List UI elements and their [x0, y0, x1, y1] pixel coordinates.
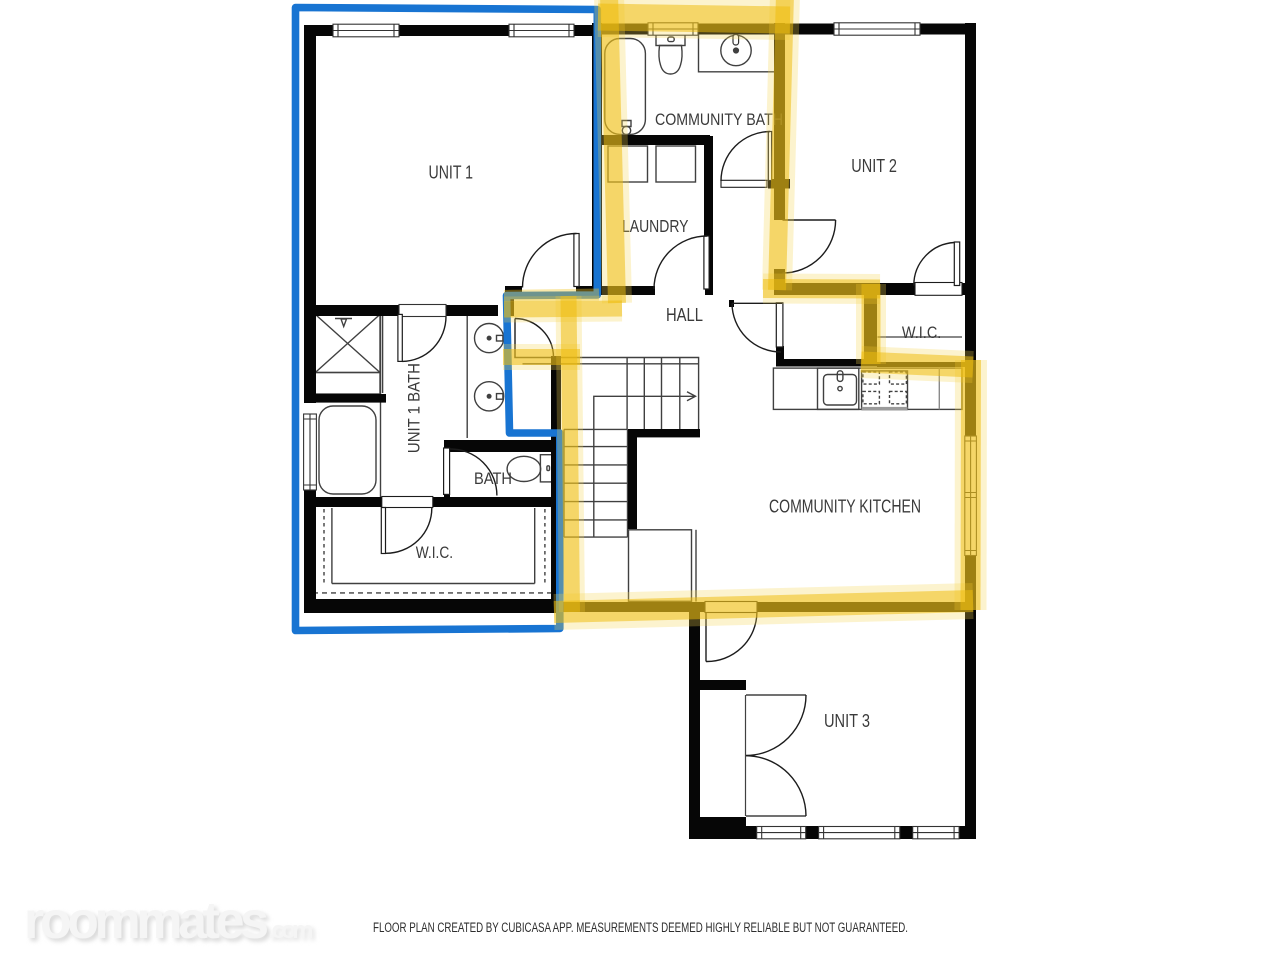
svg-text:UNIT 3: UNIT 3	[824, 710, 870, 731]
svg-text:W.I.C.: W.I.C.	[416, 544, 453, 562]
svg-text:FLOOR PLAN CREATED BY CUBICASA: FLOOR PLAN CREATED BY CUBICASA APP. MEAS…	[373, 920, 908, 935]
svg-text:LAUNDRY: LAUNDRY	[622, 216, 689, 236]
svg-text:roommates: roommates	[24, 892, 268, 950]
svg-text:COMMUNITY KITCHEN: COMMUNITY KITCHEN	[769, 496, 921, 517]
svg-text:W.I.C.: W.I.C.	[902, 324, 941, 342]
svg-text:UNIT 2: UNIT 2	[851, 156, 897, 176]
svg-text:HALL: HALL	[666, 305, 703, 325]
svg-text:.com: .com	[269, 917, 314, 944]
svg-text:UNIT 1 BATH: UNIT 1 BATH	[405, 363, 424, 453]
svg-text:UNIT 1: UNIT 1	[429, 163, 474, 183]
svg-text:BATH: BATH	[474, 469, 512, 488]
svg-text:COMMUNITY BATH: COMMUNITY BATH	[655, 111, 783, 129]
